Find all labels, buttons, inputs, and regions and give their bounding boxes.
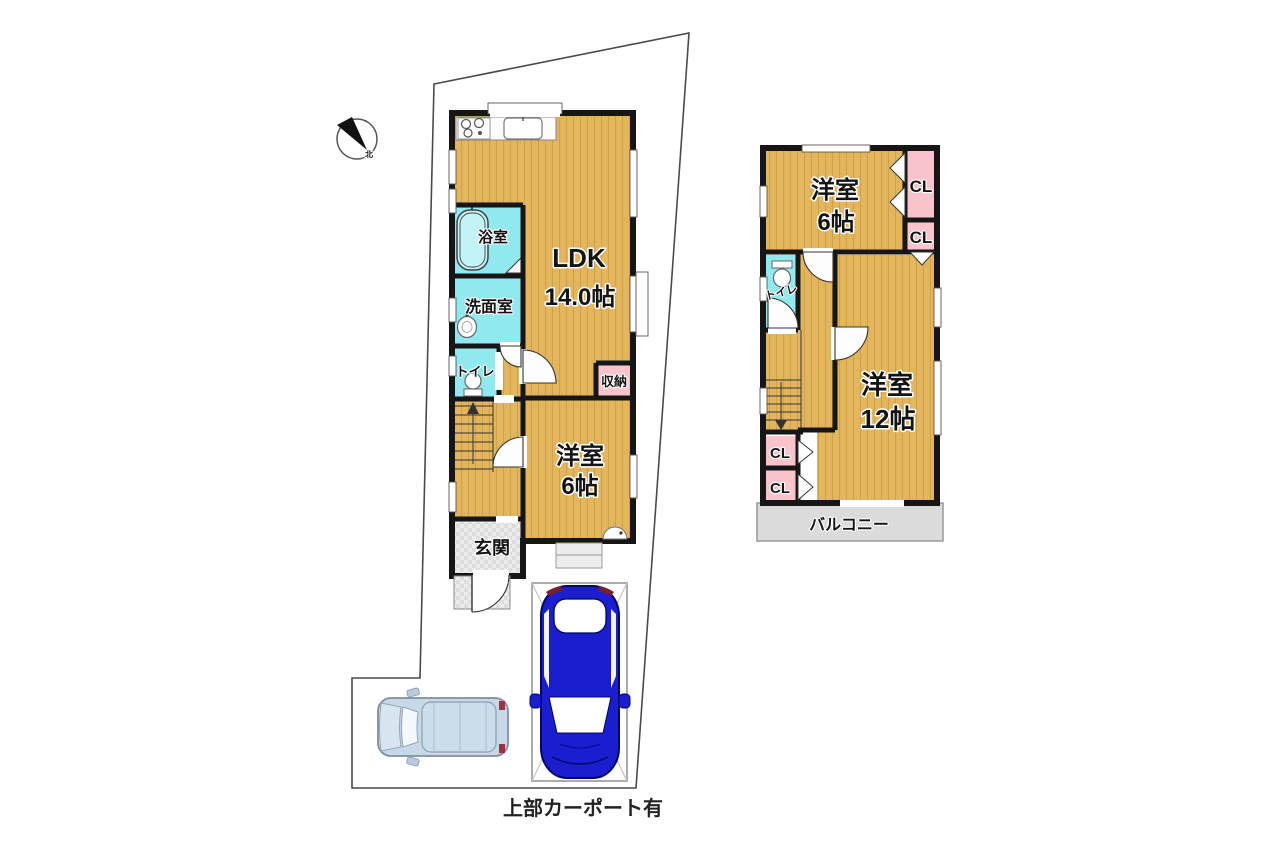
floor-plan-canvas: 北 bbox=[0, 0, 1280, 850]
label-bedroom6-2f-size: 6帖 bbox=[817, 209, 854, 236]
van-roof bbox=[422, 702, 496, 752]
label-bedroom6-2f-name: 洋室 bbox=[811, 176, 859, 204]
stairs-landing-2f bbox=[763, 330, 803, 432]
compass: 北 bbox=[337, 117, 377, 159]
label-closet-mid: CL bbox=[910, 228, 933, 247]
label-entrance: 玄関 bbox=[474, 537, 510, 558]
compass-north-label: 北 bbox=[365, 149, 373, 159]
label-bedroom12-name: 洋室 bbox=[861, 370, 913, 400]
floorplan-image: 北 bbox=[0, 0, 1280, 850]
label-bedroom12-size: 12帖 bbox=[861, 404, 916, 434]
label-ldk-name: LDK bbox=[552, 243, 606, 273]
label-closet-l1: CL bbox=[770, 445, 790, 462]
label-bedroom6-1f-name: 洋室 bbox=[556, 442, 604, 470]
car-van bbox=[378, 688, 508, 767]
floor2: 洋室 6帖 CL CL トイレ 洋室 12帖 CL CL バルコニー bbox=[757, 145, 943, 541]
van-hood bbox=[380, 703, 402, 751]
label-washroom: 洗面室 bbox=[465, 297, 513, 316]
kitchen-sink-icon bbox=[504, 118, 542, 139]
label-storage: 収納 bbox=[601, 374, 627, 389]
car-mirror-left bbox=[530, 694, 541, 708]
car-rear-window bbox=[554, 599, 606, 633]
label-closet-l2: CL bbox=[770, 480, 790, 497]
label-balcony: バルコニー bbox=[809, 516, 889, 534]
floor1: LDK 14.0帖 浴室 洗面室 トイレ 収納 玄関 洋室 6帖 bbox=[449, 103, 648, 612]
car-mirror-right bbox=[619, 694, 630, 708]
van-windshield bbox=[402, 707, 419, 747]
bay-window-right-icon bbox=[636, 272, 648, 336]
carport-caption: 上部カーポート有 bbox=[503, 796, 663, 820]
toilet-icon-2f bbox=[772, 261, 792, 287]
car-windshield bbox=[549, 697, 611, 733]
outdoor-step bbox=[556, 543, 602, 568]
van-taillight-top bbox=[499, 701, 505, 710]
label-bedroom6-1f-size: 6帖 bbox=[561, 473, 598, 500]
label-ldk-size: 14.0帖 bbox=[545, 284, 616, 311]
label-bath: 浴室 bbox=[478, 228, 508, 246]
label-closet-top: CL bbox=[910, 177, 933, 196]
car-blue-sedan bbox=[530, 586, 630, 778]
label-toilet-1f: トイレ bbox=[455, 364, 494, 379]
van-taillight-bottom bbox=[499, 744, 505, 753]
